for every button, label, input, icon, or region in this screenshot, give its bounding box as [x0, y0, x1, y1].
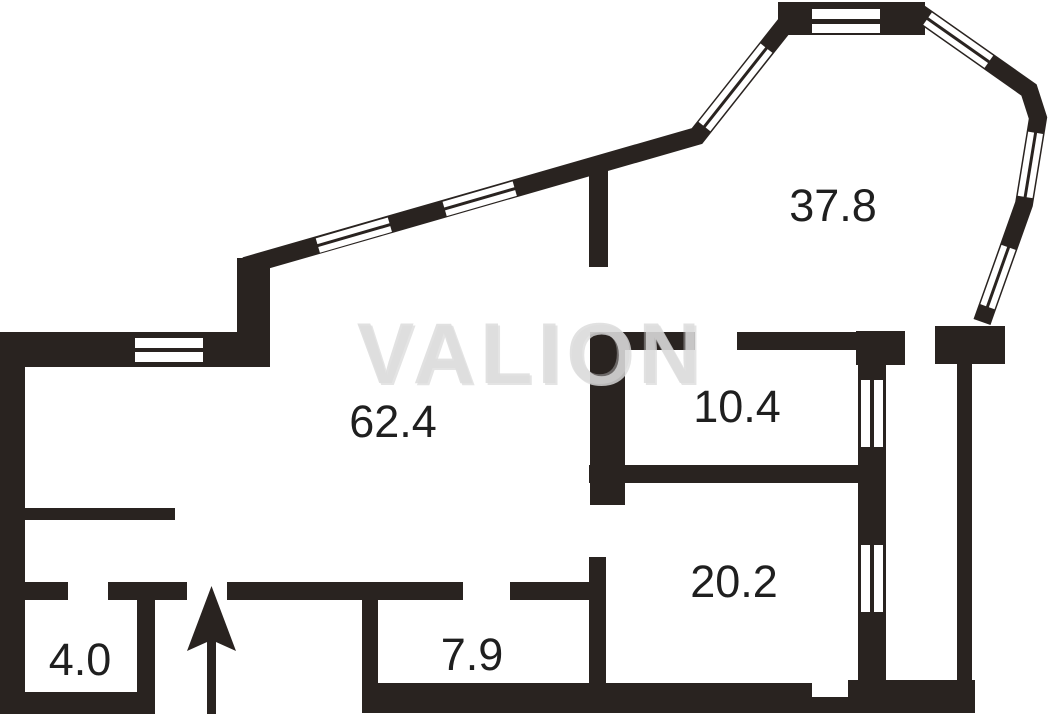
- entrance-arrow-shaft: [207, 638, 216, 714]
- wall-bottom-center: [362, 683, 850, 713]
- room-area-label-6: 4.0: [49, 634, 112, 685]
- room-area-label-5: 7.9: [441, 629, 504, 680]
- watermark-text: VALION: [359, 308, 708, 404]
- wall-mid-band-seg3: [227, 582, 463, 600]
- wall-bottom-right: [848, 680, 975, 713]
- wall-bay-bottom-corner: [935, 326, 1005, 364]
- wall-notch: [812, 683, 848, 697]
- wall-south-of-room1-seg2: [737, 332, 856, 350]
- wall-mid-band-seg1: [0, 582, 68, 600]
- window-bay-top-bar2: [812, 24, 880, 33]
- wall-divider-room3-room4: [589, 465, 862, 483]
- window-top-left-bar2: [135, 352, 203, 362]
- room-area-label-1: 37.8: [789, 180, 877, 231]
- wall-bottom-left: [0, 692, 155, 714]
- wall-mid-band-seg4: [510, 582, 590, 600]
- room-area-label-3: 10.4: [693, 381, 781, 432]
- wall-mid-band-seg2: [108, 582, 187, 600]
- wall-left-outer: [0, 332, 25, 714]
- wall-right-of-room-6: [137, 600, 155, 710]
- wall-stub-hall-partition: [25, 508, 175, 520]
- floor-plan-drawing: VALION VALION 37.8 62.4 10.4 20.2 7.9 4.…: [0, 0, 1057, 714]
- floor-plan-page: VALION VALION 37.8 62.4 10.4 20.2 7.9 4.…: [0, 0, 1057, 714]
- wall-balcony-outer-right: [957, 350, 972, 680]
- window-top-left-bar1: [135, 338, 203, 348]
- watermark: VALION VALION: [357, 306, 708, 404]
- wall-top-left-corner: [237, 258, 270, 367]
- room-area-label-4: 20.2: [690, 556, 778, 607]
- wall-corner-block-ne-room3: [856, 331, 905, 365]
- wall-stub-room1-left: [589, 168, 608, 267]
- room-area-label-2: 62.4: [349, 396, 437, 447]
- window-bay-top-bar1: [812, 9, 880, 19]
